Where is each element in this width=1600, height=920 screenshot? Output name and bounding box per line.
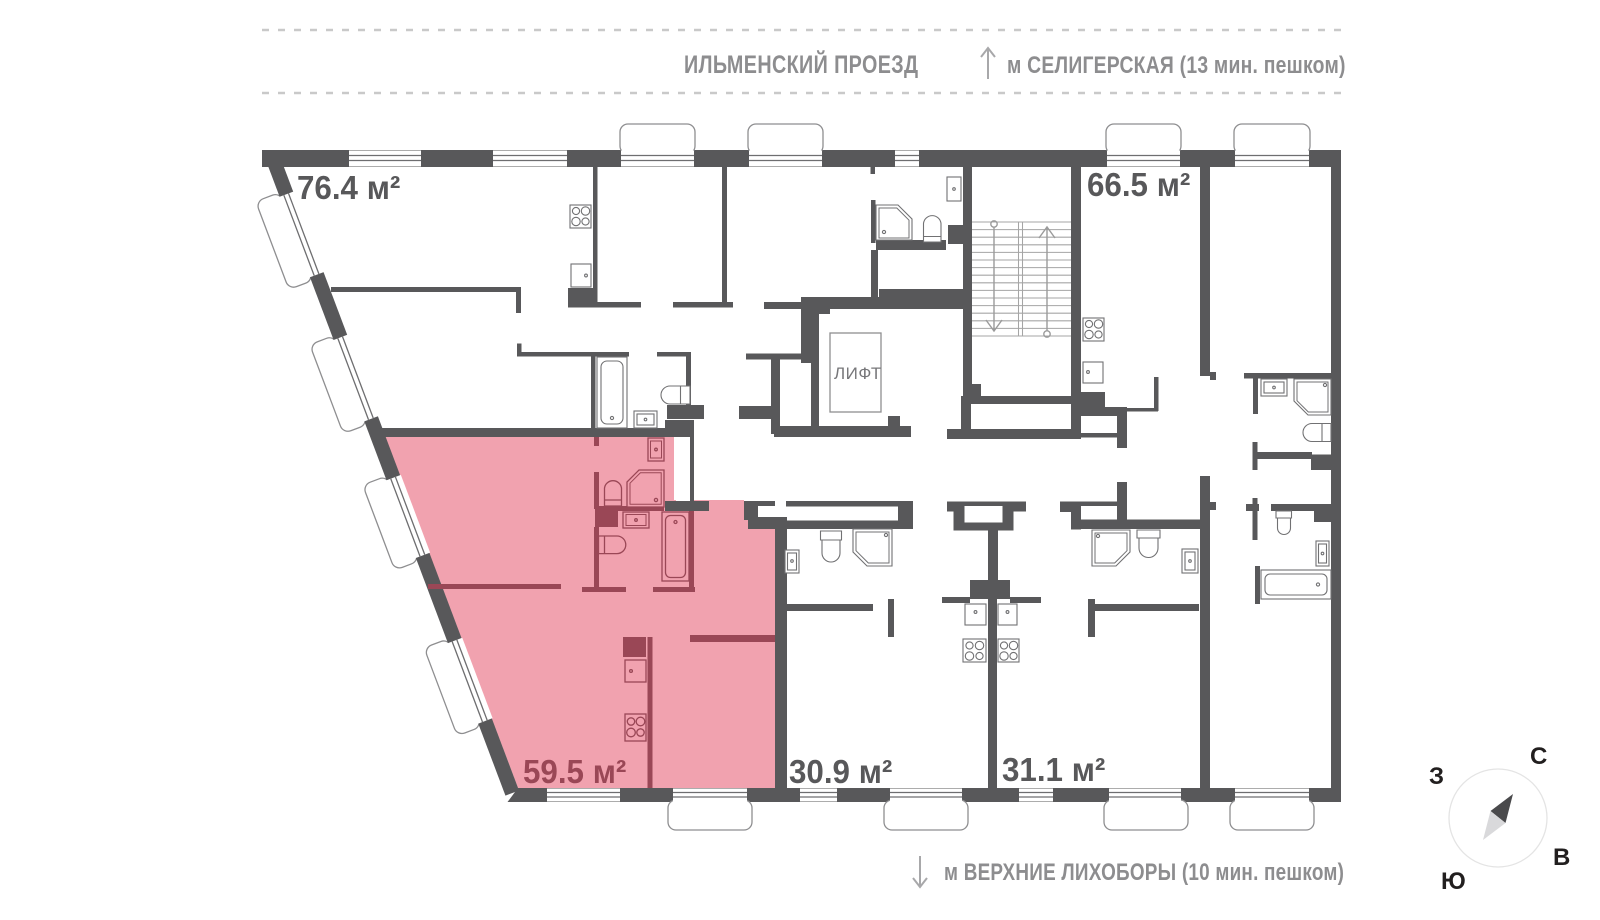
svg-text:З: З — [1429, 763, 1444, 790]
svg-text:59.5 м²: 59.5 м² — [523, 753, 627, 790]
svg-text:ИЛЬМЕНСКИЙ ПРОЕЗД: ИЛЬМЕНСКИЙ ПРОЕЗД — [684, 51, 919, 79]
svg-text:31.1 м²: 31.1 м² — [1002, 751, 1106, 788]
svg-text:30.9 м²: 30.9 м² — [789, 753, 893, 790]
svg-text:В: В — [1553, 844, 1570, 871]
svg-text:м СЕЛИГЕРСКАЯ (13 мин. пешком): м СЕЛИГЕРСКАЯ (13 мин. пешком) — [1007, 51, 1346, 79]
svg-text:76.4 м²: 76.4 м² — [297, 169, 401, 206]
svg-text:м ВЕРХНИЕ ЛИХОБОРЫ (10 мин. пе: м ВЕРХНИЕ ЛИХОБОРЫ (10 мин. пешком) — [944, 858, 1344, 886]
svg-text:Ю: Ю — [1441, 868, 1466, 895]
svg-text:ЛИФТ: ЛИФТ — [834, 364, 882, 383]
svg-text:66.5 м²: 66.5 м² — [1087, 166, 1191, 203]
svg-text:С: С — [1530, 743, 1547, 770]
